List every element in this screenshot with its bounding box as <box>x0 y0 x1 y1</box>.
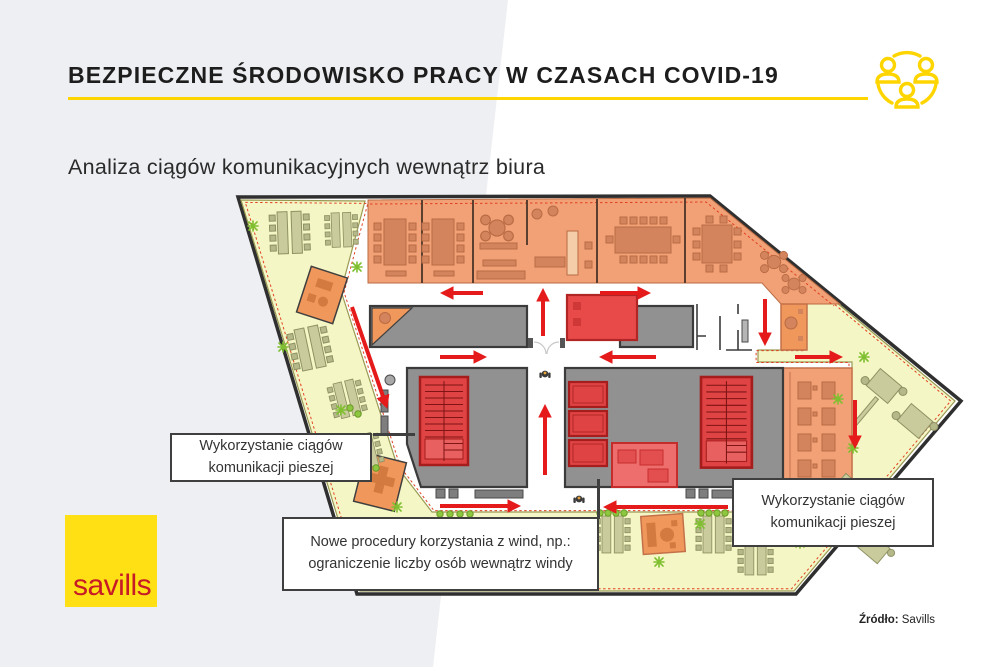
infographic-page: BEZPIECZNE ŚRODOWISKO PRACY W CZASACH CO… <box>0 0 1000 667</box>
annotation-box-elevators: Nowe procedury korzystania z wind, np.: … <box>282 517 599 591</box>
elevator-lobby <box>612 443 677 487</box>
annotation-line: Nowe procedury korzystania z wind, np.: <box>310 532 570 554</box>
source-credit: Źródło: Savills <box>859 614 935 626</box>
savills-logo: savills <box>65 515 157 607</box>
annotation-line: komunikacji pieszej <box>771 513 896 535</box>
source-label: Źródło: <box>859 614 899 626</box>
annotation-line: ograniczenie liczby osób wewnątrz windy <box>308 554 572 576</box>
annotation-leader-line <box>373 433 415 436</box>
elevator-shafts <box>569 382 607 466</box>
annotation-box-pedestrian-left: Wykorzystanie ciągów komunikacji pieszej <box>170 433 372 482</box>
annotation-leader-line <box>597 479 600 519</box>
red-room <box>567 295 637 340</box>
annotation-line: Wykorzystanie ciągów <box>761 491 904 513</box>
savills-logo-text: savills <box>73 569 151 603</box>
source-value: Savills <box>902 614 935 626</box>
annotation-line: komunikacji pieszej <box>209 458 334 480</box>
annotation-box-pedestrian-right: Wykorzystanie ciągów komunikacji pieszej <box>732 478 934 547</box>
annotation-line: Wykorzystanie ciągów <box>199 436 342 458</box>
